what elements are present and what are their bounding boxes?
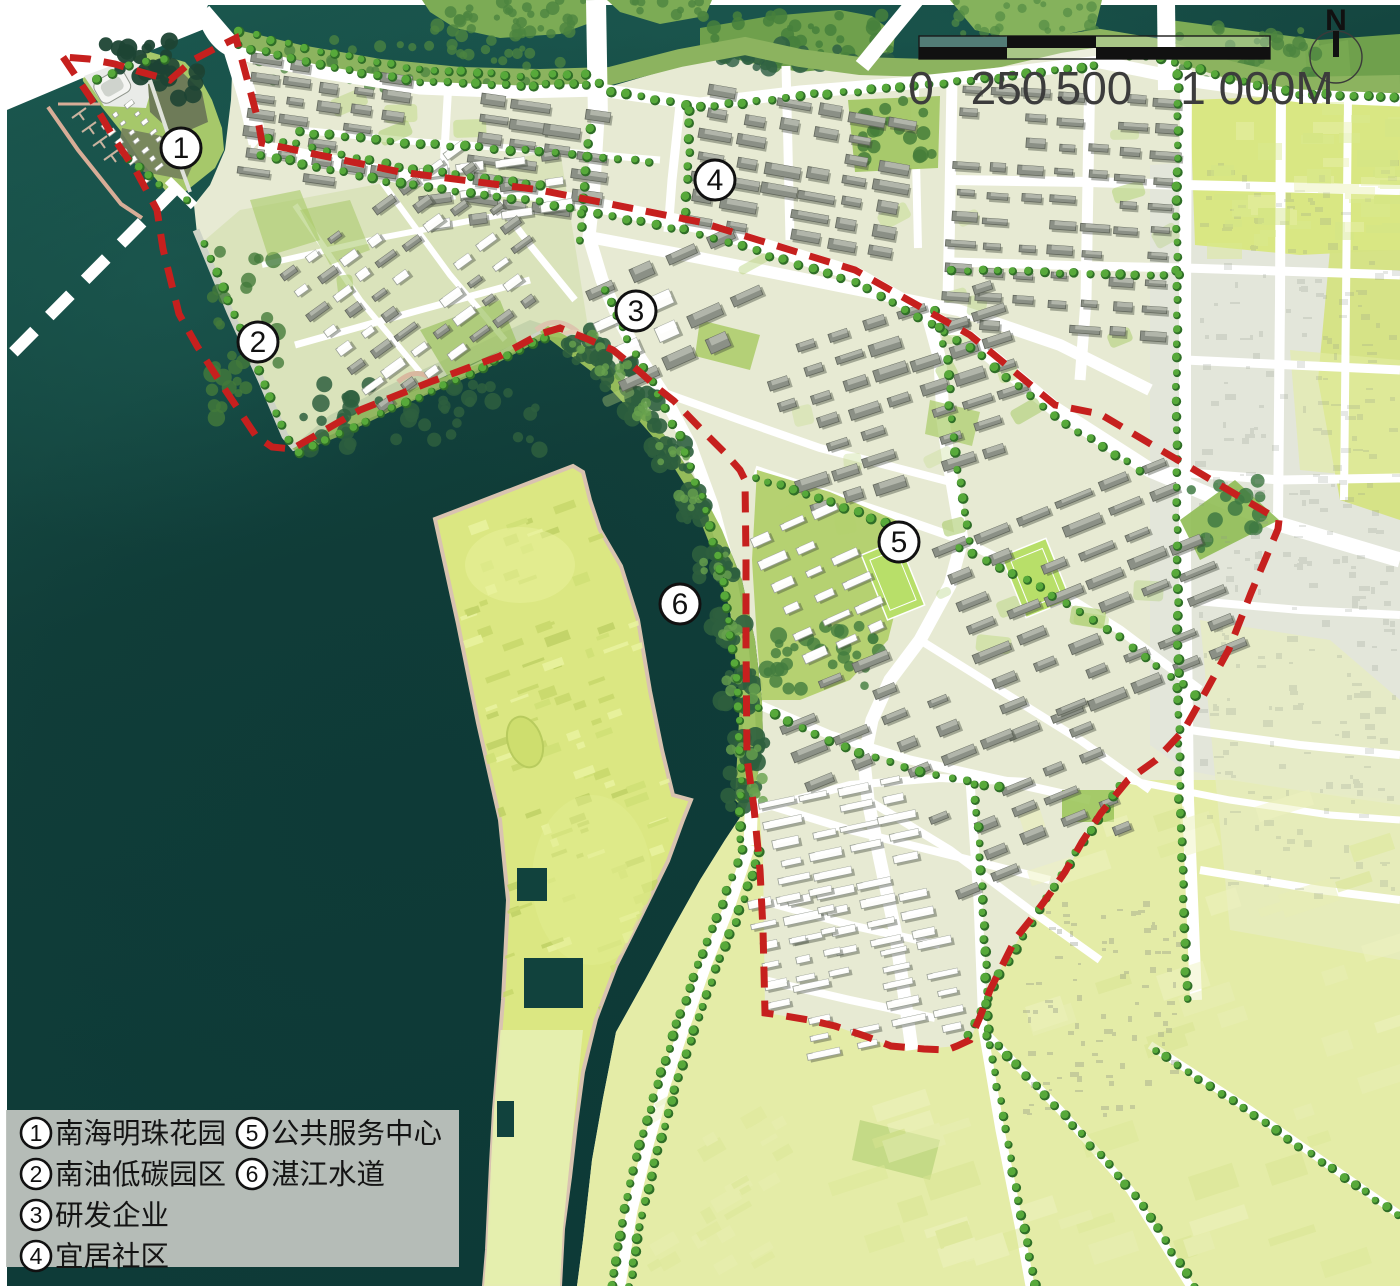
svg-text:250: 250 <box>971 62 1048 114</box>
svg-text:南油低碳园区: 南油低碳园区 <box>55 1159 226 1191</box>
svg-text:3: 3 <box>628 295 645 328</box>
svg-text:N: N <box>1325 4 1347 37</box>
svg-text:4: 4 <box>707 164 724 197</box>
svg-text:湛江水道: 湛江水道 <box>271 1159 385 1191</box>
svg-text:4: 4 <box>30 1243 43 1269</box>
svg-text:1: 1 <box>30 1120 43 1146</box>
svg-text:3: 3 <box>30 1202 43 1228</box>
svg-text:2: 2 <box>250 326 267 359</box>
svg-text:研发企业: 研发企业 <box>55 1200 169 1232</box>
svg-text:公共服务中心: 公共服务中心 <box>271 1118 442 1150</box>
svg-text:宜居社区: 宜居社区 <box>55 1241 169 1273</box>
svg-text:5: 5 <box>246 1120 259 1146</box>
svg-text:5: 5 <box>891 526 908 559</box>
svg-text:南海明珠花园: 南海明珠花园 <box>55 1118 226 1150</box>
svg-text:500: 500 <box>1056 62 1133 114</box>
svg-text:6: 6 <box>246 1161 259 1187</box>
svg-text:0: 0 <box>908 62 934 114</box>
svg-text:1 000M: 1 000M <box>1180 62 1333 114</box>
svg-text:6: 6 <box>672 588 689 621</box>
svg-text:1: 1 <box>173 132 190 165</box>
svg-text:2: 2 <box>30 1161 43 1187</box>
